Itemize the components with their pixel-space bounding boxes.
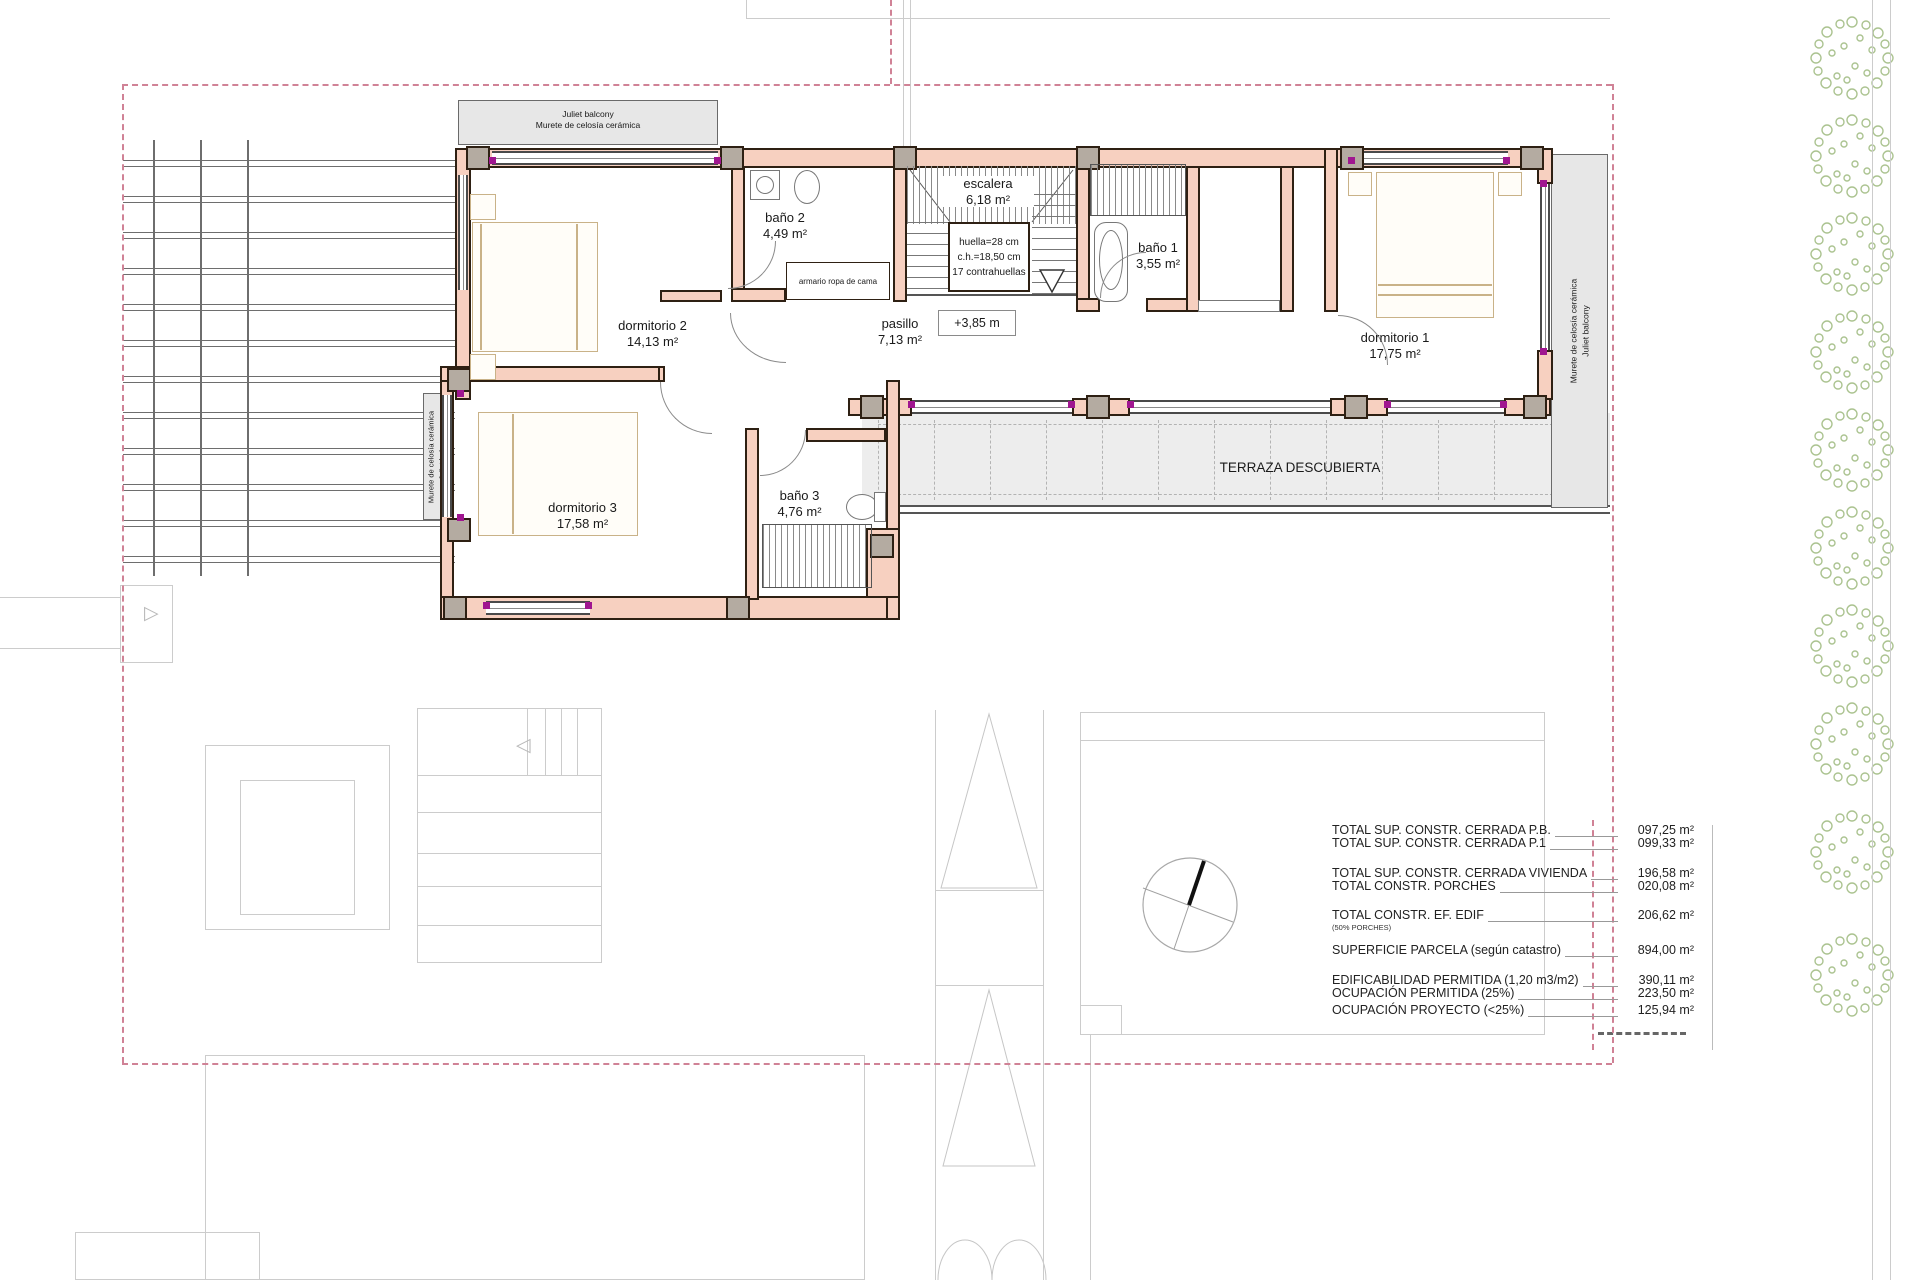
room-area: 14,13 m² [560,334,745,350]
corner-marker [908,401,915,408]
window-dorm2-west [458,175,468,290]
pergola-slat [123,412,455,419]
ghost-line [545,708,546,775]
room-label-bano1: baño 1 3,55 m² [1108,240,1208,271]
terrace-tile-line [1046,420,1047,500]
ramp-edge [935,710,936,1280]
table-row: OCUPACIÓN PROYECTO (<25%) 125,94 m² [1332,1004,1694,1017]
wardrobe-shelf [1198,300,1280,312]
linen-closet-label: armario ropa de cama [799,277,877,286]
boundary-left [122,84,124,1063]
terrace-tile-line [990,420,991,500]
corner-marker [457,514,464,521]
column [1523,395,1547,419]
pergola-slat [123,376,455,383]
parcel-edge-line [1872,0,1873,1280]
boundary-top [122,84,1612,86]
leader-line [1550,841,1618,850]
sheet-line [746,18,1610,19]
door-dorm3 [660,382,712,434]
pergola-slat [123,340,455,347]
table-row-note: (50% PORCHES) [1332,923,1694,932]
terrace-parapet [862,505,1610,514]
column [447,368,471,392]
nightstand [470,354,496,380]
column [447,518,471,542]
parcel-edge-line [1890,0,1891,1280]
room-name: baño 3 [752,488,847,504]
row-value: 390,11 m² [1622,973,1694,987]
terrace-tile-line [878,494,1558,495]
ramp-divider [935,890,1043,891]
stair-direction-arrow-icon: ◁ [516,736,531,755]
ramp-divider [935,985,1043,986]
wall-bano1-south [1076,298,1100,312]
terrace-tile-line [878,424,1558,425]
pergola-slat [123,520,455,527]
room-label-bano3: baño 3 4,76 m² [752,488,847,519]
room-label-bano2: baño 2 4,49 m² [735,210,835,241]
corner-marker [1500,401,1507,408]
column [860,395,884,419]
room-area: 7,13 m² [855,332,945,348]
row-label: TOTAL CONSTR. PORCHES [1332,879,1496,893]
ghost-lower-block [205,1055,865,1280]
wall-bano1-west [1076,148,1090,312]
ghost-line [417,853,602,854]
room-label-dorm1: dormitorio 1 17,75 m² [1310,330,1480,361]
stair-treads-left [907,222,949,294]
closet-hatch-bano1 [1090,164,1186,216]
toilet-bano2 [794,170,820,204]
pergola-slat [123,484,455,491]
terrace-tile-line [1102,420,1103,500]
ghost-line [1121,1005,1122,1035]
ghost-line [0,648,120,649]
row-label: TOTAL SUP. CONSTR. CERRADA VIVIENDA [1332,866,1587,880]
leader-line [1555,828,1618,837]
ghost-line [1080,1005,1122,1006]
ghost-line [417,775,602,776]
stair-treads-right [1032,194,1076,294]
column [870,534,894,558]
room-name: baño 2 [735,210,835,226]
wall-dorm1-west [1324,148,1338,312]
nightstand [470,194,496,220]
wall-east-stub-bottom [1537,350,1553,400]
column [1520,146,1544,170]
row-label: OCUPACIÓN PERMITIDA (25%) [1332,986,1514,1000]
window-dorm3-south [486,601,590,615]
leader-line [1488,913,1618,922]
corner-marker [457,390,464,397]
toilet-tank-bano3 [874,492,886,522]
row-value: 125,94 m² [1622,1003,1694,1017]
corner-marker [585,602,592,609]
ghost-line [577,708,578,775]
column [726,596,750,620]
leader-line [1583,978,1618,987]
room-area: 6,18 m² [942,192,1034,208]
bed-line [480,224,482,350]
sink-bowl-bano2 [756,176,774,194]
room-area: 17,58 m² [495,516,670,532]
ghost-line [1080,740,1545,741]
corner-marker [1384,401,1391,408]
level-box: +3,85 m [938,310,1016,336]
entry-arrow-icon: ▷ [144,604,159,623]
room-area: 4,76 m² [752,504,847,520]
corner-marker [714,157,721,164]
window-dorm1-east [1540,184,1550,350]
column [443,596,467,620]
row-value: 206,62 m² [1622,908,1694,922]
sheet-line [910,0,911,150]
ghost-lower-block-small [75,1232,260,1280]
ghost-line [417,925,602,926]
window-dorm2-north [492,151,718,165]
balcony-label-line1: Murete de celosía cerámica [426,393,436,520]
room-label-escalera: escalera 6,18 m² [942,176,1034,207]
table-row: TOTAL CONSTR. PORCHES 020,08 m² [1332,880,1694,893]
stair-spec-line1: huella=28 cm [950,235,1028,250]
sheet-line [903,0,904,150]
pergola-beam [200,140,202,576]
stair-spec-line3: 17 contrahuellas [950,265,1028,280]
terrace-tile-line [934,420,935,500]
room-name: dormitorio 3 [495,500,670,516]
row-label: TOTAL SUP. CONSTR. CERRADA P.1 [1332,836,1546,850]
row-label: EDIFICABILIDAD PERMITIDA (1,20 m3/m2) [1332,973,1579,987]
corner-marker [1540,180,1547,187]
corner-marker [1503,157,1510,164]
pergola-slat [123,160,455,167]
room-label-dorm3: dormitorio 3 17,58 m² [495,500,670,531]
leader-line [1500,884,1618,893]
bed-line [1378,294,1492,296]
row-label: SUPERFICIE PARCELA (según catastro) [1332,943,1561,957]
row-label: TOTAL CONSTR. EF. EDIF [1332,908,1484,922]
wall-bano3-north [806,428,886,442]
column [466,146,490,170]
nightstand [1348,172,1372,196]
room-label-pasillo: pasillo 7,13 m² [855,316,945,347]
ghost-line [561,708,562,775]
corner-marker [489,157,496,164]
room-area: 4,49 m² [735,226,835,242]
shower-hatch-bano3 [762,524,872,588]
bed-dorm1 [1376,172,1494,318]
room-name: baño 1 [1108,240,1208,256]
stair-spec-line2: c.h.=18,50 cm [950,250,1028,265]
pergola-slat [123,268,455,275]
balcony-label-line1: Murete de celosía cerámica [1568,154,1579,508]
ghost-line [0,597,120,598]
balcony-label-line2: Murete de celosía cerámica [459,120,717,131]
pergola-beam [153,140,155,576]
leader-line [1591,871,1618,880]
nightstand [1498,172,1522,196]
terrace-tile-line [1158,420,1159,500]
leader-line [1528,1008,1618,1017]
table-row: SUPERFICIE PARCELA (según catastro) 894,… [1332,944,1694,957]
wall-closet-stub [1280,166,1294,312]
juliet-balcony-east: Murete de celosía cerámica Juliet balcon… [1551,154,1608,508]
sheet-line [1090,1035,1091,1280]
table-row: OCUPACIÓN PERMITIDA (25%) 223,50 m² [1332,987,1694,1000]
ramp-edge [1043,710,1044,1280]
boundary-bottom [122,1063,1612,1065]
row-label: TOTAL SUP. CONSTR. CERRADA P.B. [1332,823,1551,837]
ramp-arrows [938,714,1046,1280]
room-name: escalera [942,176,1034,192]
terrace-floor [862,413,1610,505]
column [1344,395,1368,419]
window-dorm1-south-1 [1130,400,1330,414]
window-dorm3-west [442,395,452,517]
table-row: TOTAL CONSTR. EF. EDIF 206,62 m² [1332,909,1694,922]
corner-marker [1068,401,1075,408]
pergola-beam [247,140,249,576]
wall-closet-stub [1186,166,1200,312]
room-name: dormitorio 2 [560,318,745,334]
door-bano3 [760,430,806,476]
ghost-line [417,812,602,813]
row-value: 196,58 m² [1622,866,1694,880]
pergola-slat [123,556,455,563]
corner-marker [1348,157,1355,164]
stair-spec-box: huella=28 cm c.h.=18,50 cm 17 contrahuel… [948,222,1030,292]
corner-marker [1540,348,1547,355]
column [1086,395,1110,419]
room-label-dorm2: dormitorio 2 14,13 m² [560,318,745,349]
ghost-entry-structure [120,585,173,663]
window-dorm1-north [1352,151,1508,165]
wall-bano2-south [731,288,786,302]
row-label: OCUPACIÓN PROYECTO (<25%) [1332,1003,1524,1017]
pergola-slat [123,196,455,203]
row-value: 223,50 m² [1622,986,1694,1000]
terrace-label: TERRAZA DESCUBIERTA [1185,460,1415,476]
window-pasillo-south [912,400,1072,414]
sheet-line [1712,825,1713,1050]
corner-marker [1127,401,1134,408]
wall-stair-west [893,148,907,302]
terrace-label-text: TERRAZA DESCUBIERTA [1220,460,1381,475]
tree-row [1811,17,1893,1016]
column [720,146,744,170]
door-bano2 [728,241,776,289]
terrace-tile-line [1494,420,1495,500]
room-area: 3,55 m² [1108,256,1208,272]
corner-marker [483,602,490,609]
table-row: TOTAL SUP. CONSTR. CERRADA P.1 099,33 m² [1332,837,1694,850]
floor-plan-sheet: ▷ ◁ TERRAZA DESC [0,0,1920,1280]
room-area: 17,75 m² [1310,346,1480,362]
wall-dorm2-corner [660,290,722,302]
ghost-patio-inner [240,780,355,915]
pergola-slat [123,232,455,239]
balcony-label-line1: Juliet balcony [459,109,717,120]
areas-table: TOTAL SUP. CONSTR. CERRADA P.B. 097,25 m… [1332,824,1694,1017]
level-value: +3,85 m [954,316,1000,330]
linen-closet: armario ropa de cama [786,262,890,300]
pergola-slat [123,304,455,311]
pergola-slat [123,448,455,455]
ghost-line [417,886,602,887]
row-value: 020,08 m² [1622,879,1694,893]
leader-line [1518,991,1618,1000]
balcony-label-line2: Juliet balcony [1580,154,1591,508]
leader-line [1565,948,1618,957]
terrace-tile-line [1438,420,1439,500]
stair-bottom-line [907,294,1076,296]
row-value: 099,33 m² [1622,836,1694,850]
bed-line [1378,284,1492,286]
room-name: pasillo [855,316,945,332]
row-value: 894,00 m² [1622,943,1694,957]
sheet-line [746,0,747,18]
boundary-spur-top [890,0,892,84]
room-name: dormitorio 1 [1310,330,1480,346]
row-value: 097,25 m² [1622,823,1694,837]
window-dorm1-south-2 [1388,400,1504,414]
juliet-balcony-north: Juliet balcony Murete de celosía cerámic… [458,100,718,145]
